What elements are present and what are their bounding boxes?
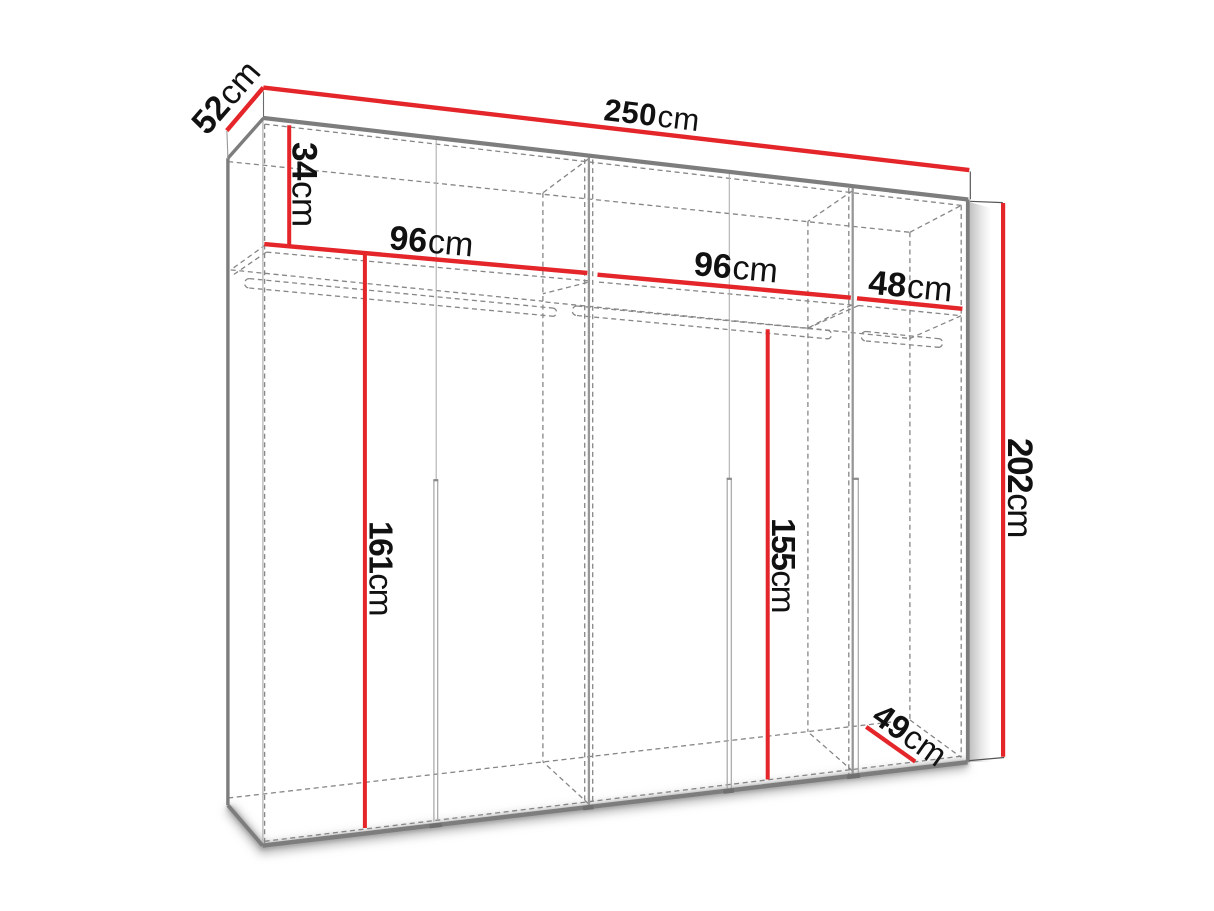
svg-text:48cm: 48cm: [867, 264, 954, 310]
svg-text:34cm: 34cm: [285, 142, 324, 227]
svg-text:155cm: 155cm: [764, 518, 801, 612]
svg-text:161cm: 161cm: [362, 521, 399, 615]
svg-text:96cm: 96cm: [388, 219, 475, 264]
svg-text:96cm: 96cm: [692, 245, 779, 290]
svg-text:202cm: 202cm: [1000, 438, 1039, 537]
